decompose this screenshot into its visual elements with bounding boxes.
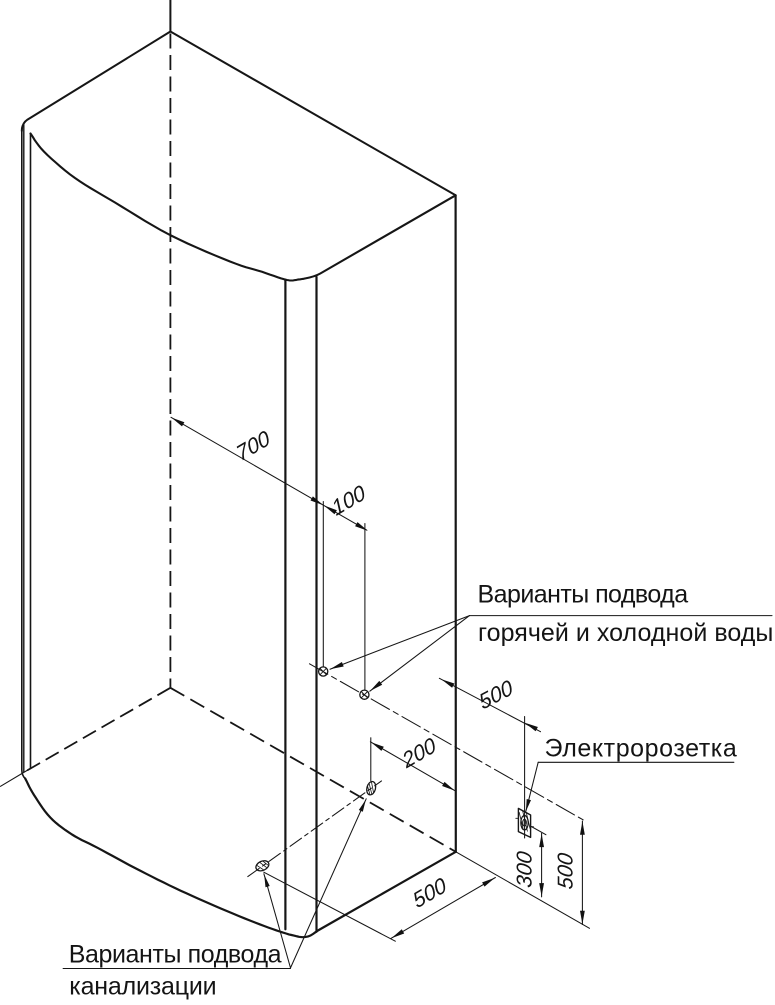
svg-text:300: 300 [512,850,537,889]
svg-text:Варианты подвода: Варианты подвода [478,580,689,608]
svg-text:Электророзетка: Электророзетка [545,734,738,762]
svg-text:канализации: канализации [69,973,216,1000]
svg-text:горячей и холодной воды: горячей и холодной воды [478,619,773,647]
svg-text:Варианты подвода: Варианты подвода [69,940,282,968]
svg-text:500: 500 [553,852,578,891]
